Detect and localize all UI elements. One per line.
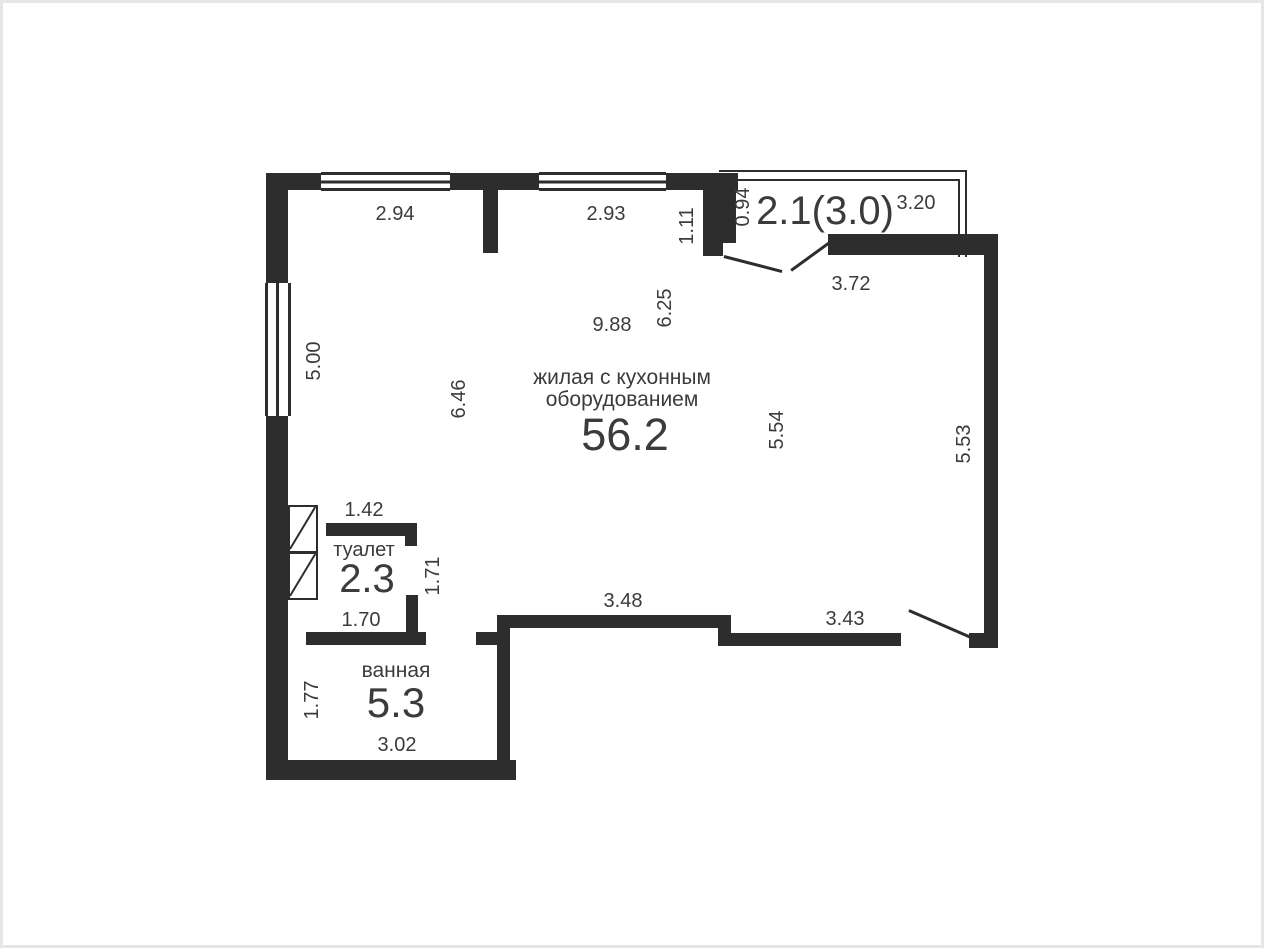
bathroom-area: 5.3 bbox=[326, 682, 466, 724]
wall-right bbox=[984, 255, 998, 633]
dim-bathroom-width: 3.02 bbox=[367, 733, 427, 757]
wall-bottom bbox=[266, 760, 516, 780]
dim-living-height-left-part: 6.25 bbox=[653, 278, 677, 338]
wall-left bbox=[266, 173, 288, 780]
window-left bbox=[265, 283, 291, 416]
living-room-name-line1: жилая с кухонным bbox=[512, 367, 732, 389]
window-top-middle bbox=[539, 172, 666, 191]
dim-living-width: 9.88 bbox=[582, 313, 642, 337]
dim-living-right-height: 5.54 bbox=[765, 400, 789, 460]
dim-top-right-wall: 3.72 bbox=[821, 272, 881, 296]
balcony-area: 2.1(3.0) bbox=[725, 191, 925, 231]
floor-plan: 2.94 2.93 1.11 0.94 3.20 3.72 5.00 9.88 … bbox=[0, 0, 1264, 948]
wall-stub-between-windows bbox=[483, 190, 498, 253]
entry-door-leaf bbox=[909, 609, 972, 638]
wall-bathroom-door-jamb bbox=[476, 632, 510, 645]
wall-bottom-right-partition bbox=[718, 633, 901, 646]
living-room-area: 56.2 bbox=[545, 412, 705, 457]
dim-toilet-width: 1.42 bbox=[334, 498, 394, 522]
dim-bathroom-height: 1.77 bbox=[300, 670, 324, 730]
dim-living-left-height: 6.46 bbox=[447, 369, 471, 429]
wall-toilet-right-lower bbox=[406, 595, 418, 645]
dim-window-top-middle: 2.93 bbox=[576, 202, 636, 226]
dim-toilet-bottom: 1.70 bbox=[331, 608, 391, 632]
dim-partition-middle: 3.48 bbox=[593, 589, 653, 613]
dim-window-left: 5.00 bbox=[302, 331, 326, 391]
dim-partition-right: 3.43 bbox=[815, 607, 875, 631]
wall-top-right bbox=[828, 234, 998, 255]
dim-window-top-left: 2.94 bbox=[365, 202, 425, 226]
toilet-area: 2.3 bbox=[307, 559, 427, 599]
wall-toilet-top bbox=[326, 523, 417, 536]
balcony-door-leaf-left bbox=[724, 255, 783, 272]
dim-right-wall: 5.53 bbox=[952, 414, 976, 474]
window-top-left bbox=[321, 172, 450, 191]
wall-balcony-left-jamb-foot bbox=[703, 243, 723, 256]
living-room-name-line2: оборудованием bbox=[512, 389, 732, 411]
wall-right-foot bbox=[969, 633, 998, 648]
wall-bottom-middle-partition bbox=[500, 615, 730, 628]
dim-top-right-recess: 1.11 bbox=[675, 196, 699, 256]
